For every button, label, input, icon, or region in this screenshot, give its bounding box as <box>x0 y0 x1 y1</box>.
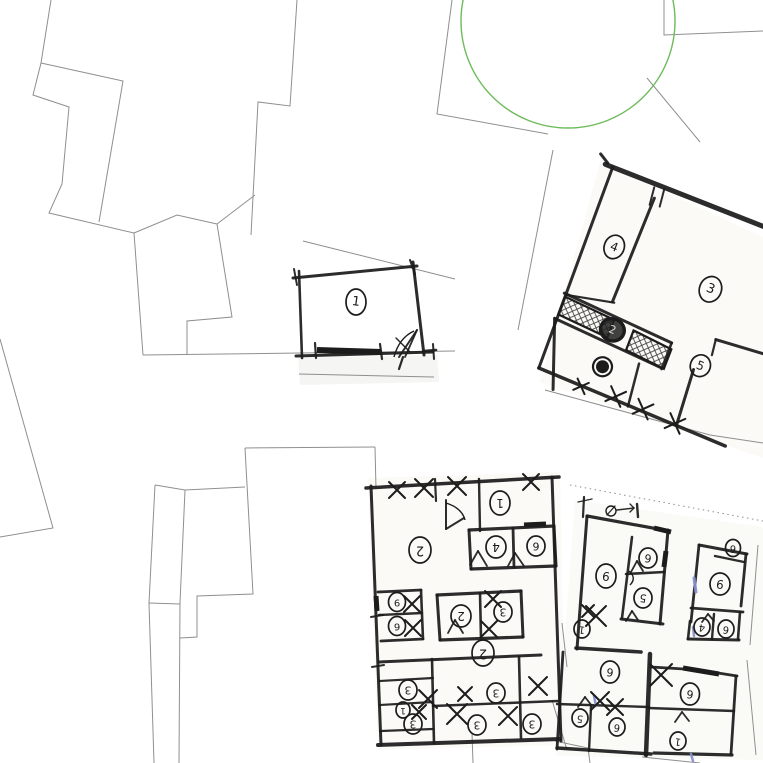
room-label-number: 3 <box>493 687 500 700</box>
green-circle-layer <box>461 0 675 128</box>
wall-stroke <box>433 344 434 359</box>
wall-stroke <box>513 528 514 567</box>
wall-stroke <box>554 526 556 566</box>
site-line-road-right <box>179 490 185 763</box>
room-label-number: 3 <box>405 684 412 697</box>
wall-stroke <box>293 266 417 278</box>
wall-stroke <box>637 504 638 517</box>
site-line-mid-diagonal <box>217 195 255 224</box>
site-line-mid-left-edge <box>134 233 143 355</box>
window-bar <box>376 596 377 611</box>
room-label-number: 6 <box>394 621 400 632</box>
wall-stroke <box>480 593 481 638</box>
paper-patch <box>298 355 439 385</box>
wall-stroke <box>688 639 739 640</box>
site-line-upper-plan-left-diag <box>518 150 553 330</box>
site-line-left-wedge <box>0 339 53 537</box>
site-line-top-right-diag <box>647 78 700 142</box>
wall-stroke <box>521 591 523 637</box>
room-label-number: 1 <box>351 294 361 310</box>
room-label-number: 9 <box>394 597 400 608</box>
room-label-number: 3 <box>474 719 481 732</box>
window-bar <box>524 524 546 525</box>
site-line-small-bldg-top <box>155 485 245 490</box>
site-line-mid-building-right <box>187 224 232 355</box>
site-line-road-left <box>149 485 155 763</box>
wall-stroke <box>315 343 316 358</box>
floorplan-sketch-page: 143251246962323133339651694665661 <box>0 0 763 763</box>
room-label-number: 6 <box>533 540 540 553</box>
room-label-number: 2 <box>457 609 465 623</box>
window-bar <box>664 551 666 567</box>
site-line-top-right-corner <box>664 0 763 35</box>
wall-stroke <box>381 639 423 641</box>
room-label-number: 3 <box>410 718 417 731</box>
site-line-top-mid-east <box>437 0 548 134</box>
wall-stroke <box>413 262 424 355</box>
wall-stroke <box>378 590 421 592</box>
room-label-number: 4 <box>492 540 500 554</box>
wall-stroke <box>694 578 696 592</box>
wall-stroke <box>598 154 609 163</box>
sketch-canvas: 143251246962323133339651694665661 <box>0 0 763 763</box>
site-line-nw-parcel-west <box>33 0 134 233</box>
wall-stroke <box>479 479 480 531</box>
room-label-1: 1 <box>346 289 366 315</box>
site-line-diag-over-room1 <box>303 241 455 279</box>
wall-stroke <box>435 479 436 501</box>
site-line-big-rect-top <box>245 447 375 448</box>
wall-stroke <box>654 753 732 755</box>
room-label-number: 3 <box>529 718 536 731</box>
room-label-number: 3 <box>500 606 507 619</box>
site-line-nw-L-building <box>41 63 123 222</box>
room-label-number: 1 <box>496 496 504 510</box>
site-line-mid-building-top <box>134 215 217 233</box>
site-line-step-outline <box>180 448 253 638</box>
green-circle-marker <box>461 0 675 128</box>
room-label-number: 1 <box>400 705 406 715</box>
wall-stroke <box>583 497 584 517</box>
site-line-road-jog <box>149 603 180 604</box>
window-bar <box>317 350 381 352</box>
room-label-number: 2 <box>416 543 424 558</box>
wall-stroke <box>299 271 302 358</box>
room-label-number: 2 <box>479 646 487 661</box>
wall-stroke <box>630 504 634 508</box>
site-line-top-mid-west <box>251 0 297 235</box>
site-plan-layer <box>0 0 763 763</box>
